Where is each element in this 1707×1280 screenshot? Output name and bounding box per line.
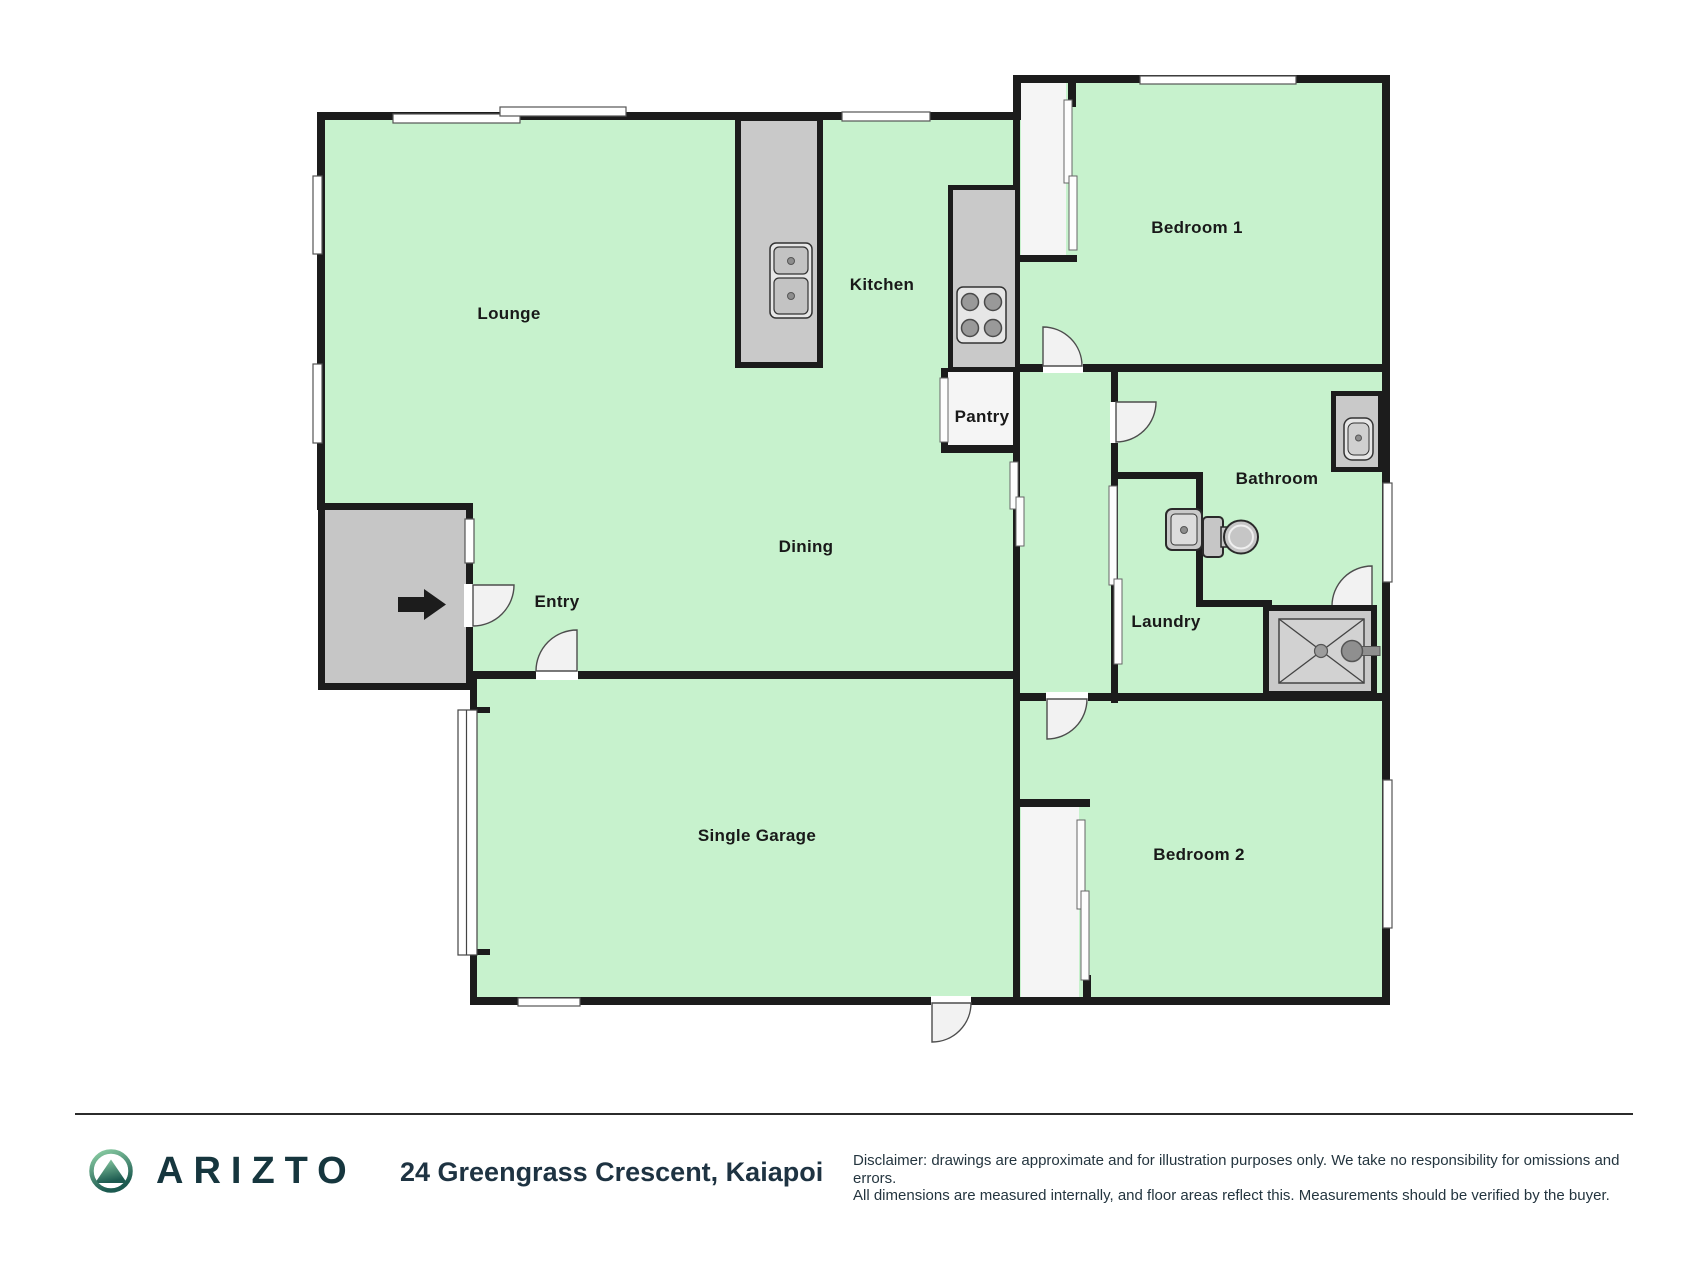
bedroom1-wardrobe xyxy=(1021,83,1066,255)
disclaimer-line-2: All dimensions are measured internally, … xyxy=(853,1187,1653,1205)
window xyxy=(842,112,930,121)
window xyxy=(313,176,322,254)
floor-plan: Lounge Kitchen Pantry Dining Entry Bedro… xyxy=(0,0,1707,1115)
vanity-sink-icon xyxy=(1344,418,1373,460)
room-label-bedroom1: Bedroom 1 xyxy=(1151,218,1243,237)
garage-rear-door xyxy=(932,1003,971,1042)
window xyxy=(1140,76,1296,84)
room-label-laundry: Laundry xyxy=(1131,612,1200,631)
double-sink-icon xyxy=(770,243,812,318)
cooktop-icon xyxy=(957,287,1006,343)
disclaimer-line-1: Disclaimer: drawings are approximate and… xyxy=(853,1152,1653,1187)
arizto-logo-icon xyxy=(88,1148,134,1194)
cavity-slider xyxy=(1016,497,1024,546)
entry-porch xyxy=(322,507,470,687)
room-label-kitchen: Kitchen xyxy=(850,275,914,294)
laundry-tub-icon xyxy=(1166,509,1202,550)
property-address: 24 Greengrass Crescent, Kaiapoi xyxy=(400,1155,823,1189)
room-label-lounge: Lounge xyxy=(477,304,540,323)
disclaimer-text: Disclaimer: drawings are approximate and… xyxy=(853,1152,1653,1205)
window xyxy=(518,998,580,1006)
toilet-icon xyxy=(1203,517,1258,557)
room-label-entry: Entry xyxy=(535,592,580,611)
bathroom-vanity xyxy=(1334,394,1381,470)
window xyxy=(313,364,322,443)
room-label-dining: Dining xyxy=(779,537,834,556)
laundry-slider xyxy=(1109,486,1117,585)
room-label-pantry: Pantry xyxy=(955,407,1010,426)
bedroom2-wardrobe xyxy=(1021,807,1079,997)
window xyxy=(1383,483,1392,582)
wardrobe-slider xyxy=(1069,176,1077,250)
kitchen-counter xyxy=(951,188,1018,370)
kitchen-island xyxy=(738,118,820,365)
window xyxy=(500,107,626,116)
footer-divider xyxy=(75,1113,1633,1115)
porch-window xyxy=(465,519,474,563)
shower xyxy=(1266,608,1380,694)
room-label-bathroom: Bathroom xyxy=(1236,469,1319,488)
window xyxy=(1383,780,1392,928)
brand-name: ARIZTO xyxy=(156,1150,357,1192)
wardrobe-slider xyxy=(1064,100,1072,183)
wardrobe-slider xyxy=(1081,891,1089,980)
pantry-slider xyxy=(940,378,948,442)
room-label-bedroom2: Bedroom 2 xyxy=(1153,845,1245,864)
laundry-slider xyxy=(1114,579,1122,664)
room-label-garage: Single Garage xyxy=(698,826,816,845)
garage-door xyxy=(458,710,477,955)
